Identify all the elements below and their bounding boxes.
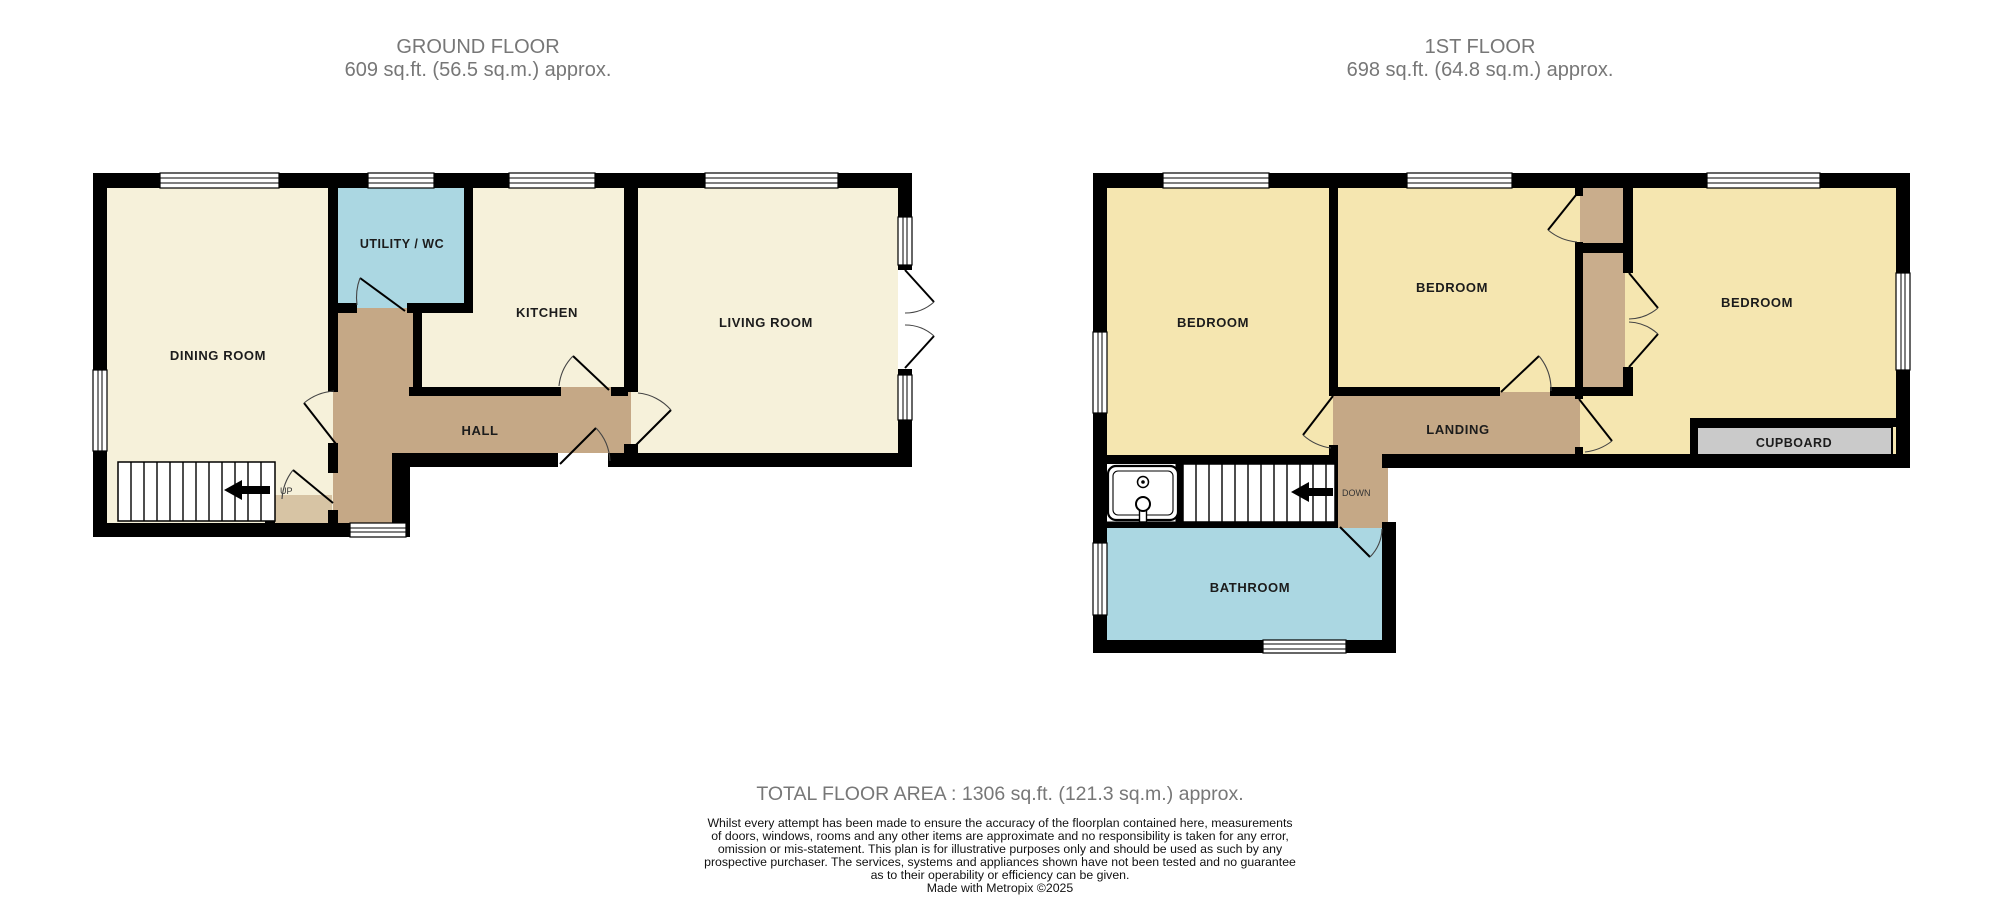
- ground-floor-area: 609 sq.ft. (56.5 sq.m.) approx.: [345, 59, 612, 81]
- bathroom-label: BATHROOM: [1210, 580, 1290, 595]
- window: [1093, 543, 1107, 615]
- living-room-label: LIVING ROOM: [719, 315, 813, 330]
- kitchen-label: KITCHEN: [516, 305, 578, 320]
- window: [705, 173, 838, 188]
- disclaimer-line: prospective purchaser. The services, sys…: [704, 855, 1296, 869]
- footer: TOTAL FLOOR AREA : 1306 sq.ft. (121.3 sq…: [704, 783, 1296, 895]
- sink-icon: [1108, 466, 1178, 522]
- closet-upper-floor: [1580, 180, 1625, 250]
- floor-titles: GROUND FLOOR 609 sq.ft. (56.5 sq.m.) app…: [345, 36, 1614, 81]
- disclaimer-line: Whilst every attempt has been made to en…: [707, 816, 1292, 830]
- total-floor-area: TOTAL FLOOR AREA : 1306 sq.ft. (121.3 sq…: [756, 783, 1243, 805]
- disclaimer-line: omission or mis-statement. This plan is …: [718, 842, 1283, 856]
- stairs-down-label: DOWN: [1342, 488, 1371, 498]
- ground-floor-title: GROUND FLOOR: [396, 36, 559, 58]
- ground-floor: UP DINING ROOM UTILITY / WC KITCHEN LIVI…: [93, 173, 934, 537]
- stairs-up-label: UP: [280, 486, 293, 496]
- floorplan-page: UP DINING ROOM UTILITY / WC KITCHEN LIVI…: [0, 0, 2000, 906]
- window: [1707, 173, 1820, 188]
- window: [93, 370, 107, 451]
- first-room-floors: [1100, 180, 1903, 647]
- first-floor-title: 1ST FLOOR: [1425, 36, 1536, 58]
- bedroom-left-label: BEDROOM: [1177, 315, 1249, 330]
- floorplan-drawing: UP DINING ROOM UTILITY / WC KITCHEN LIVI…: [0, 0, 2000, 906]
- ground-stairs: UP: [118, 462, 293, 521]
- window: [1263, 640, 1346, 653]
- disclaimer-line: as to their operability or efficiency ca…: [871, 868, 1130, 882]
- cupboard-label: CUPBOARD: [1756, 436, 1832, 450]
- window: [368, 173, 434, 188]
- window: [350, 523, 406, 537]
- window: [1163, 173, 1269, 188]
- dining-room-label: DINING ROOM: [170, 348, 266, 363]
- closet-lower-floor: [1580, 250, 1625, 390]
- first-floor-area: 698 sq.ft. (64.8 sq.m.) approx.: [1347, 59, 1614, 81]
- window: [898, 375, 912, 420]
- credit-line: Made with Metropix ©2025: [927, 881, 1074, 895]
- bedroom-right-label: BEDROOM: [1721, 295, 1793, 310]
- window: [1896, 273, 1910, 370]
- window: [509, 173, 595, 188]
- window: [898, 217, 912, 265]
- landing-label: LANDING: [1426, 422, 1489, 437]
- bedroom-middle-label: BEDROOM: [1416, 280, 1488, 295]
- window: [1093, 332, 1107, 413]
- utility-wc-label: UTILITY / WC: [360, 237, 444, 251]
- hall-label: HALL: [461, 423, 498, 438]
- window: [160, 173, 279, 188]
- disclaimer-line: of doors, windows, rooms and any other i…: [711, 829, 1289, 843]
- first-floor: DOWN BEDROOM BEDROOM BEDR: [1093, 173, 1910, 653]
- window: [1407, 173, 1512, 188]
